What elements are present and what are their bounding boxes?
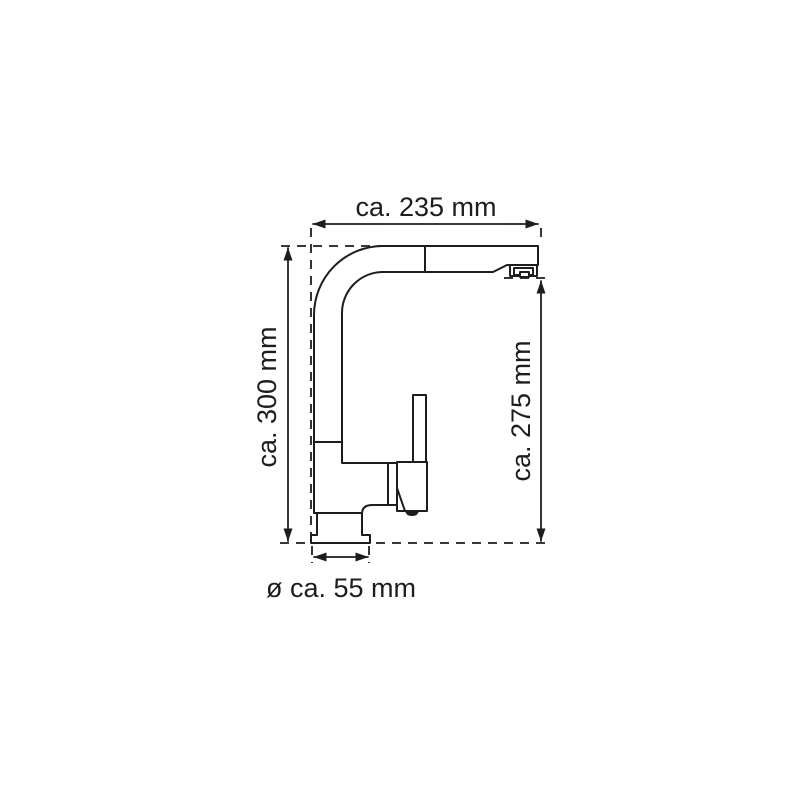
dimension-label-right-height: ca. 275 mm	[506, 340, 536, 481]
dimension-left-height: ca. 300 mm	[252, 248, 288, 541]
dimension-label-base-diameter: ø ca. 55 mm	[266, 573, 416, 603]
dimension-base-diameter: ø ca. 55 mm	[266, 557, 416, 603]
dimension-label-top-width: ca. 235 mm	[355, 192, 496, 222]
dimension-right-height: ca. 275 mm	[506, 281, 541, 541]
faucet-dimension-drawing: ca. 235 mm ca. 300 mm ca. 275 mm ø ca. 5…	[0, 0, 800, 800]
dimension-top-width: ca. 235 mm	[313, 192, 538, 224]
dimension-label-left-height: ca. 300 mm	[252, 326, 282, 467]
handle-lever	[413, 395, 426, 462]
aerator-notch	[520, 272, 529, 277]
faucet-drawing	[311, 246, 538, 543]
spray-head	[510, 265, 537, 277]
housing-nub	[405, 511, 419, 516]
technical-drawing-canvas: ca. 235 mm ca. 300 mm ca. 275 mm ø ca. 5…	[0, 0, 800, 800]
